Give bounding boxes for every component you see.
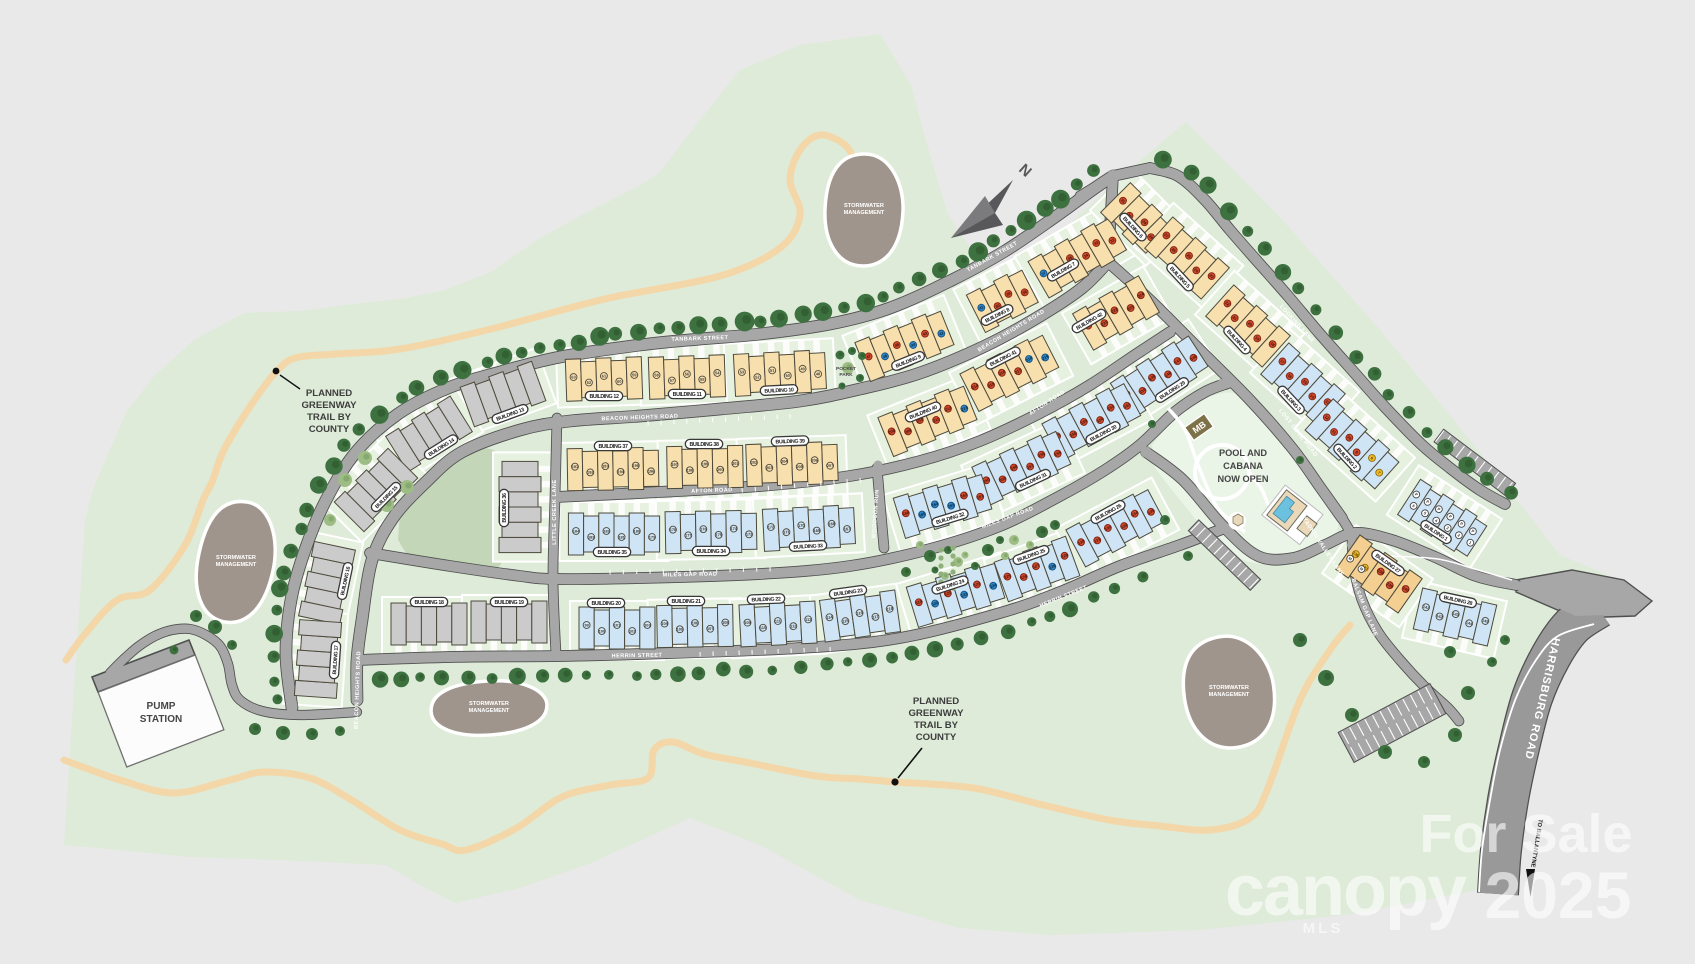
svg-text:PLANNED: PLANNED <box>306 388 352 399</box>
svg-text:178: 178 <box>670 527 677 532</box>
svg-text:110: 110 <box>760 625 767 630</box>
svg-text:MANAGEMENT: MANAGEMENT <box>1209 692 1250 698</box>
svg-text:103: 103 <box>644 622 651 627</box>
svg-text:206: 206 <box>811 457 818 462</box>
svg-text:117: 117 <box>872 614 879 620</box>
svg-text:195: 195 <box>632 463 639 468</box>
svg-text:LITTLE CREEK LANE: LITTLE CREEK LANE <box>552 479 558 544</box>
svg-text:PARK: PARK <box>839 372 853 378</box>
svg-text:205: 205 <box>796 464 803 469</box>
svg-text:172: 172 <box>768 524 776 529</box>
svg-text:108: 108 <box>722 620 729 625</box>
svg-text:200: 200 <box>717 467 724 472</box>
svg-text:182: 182 <box>603 528 610 533</box>
svg-text:175: 175 <box>715 532 722 537</box>
svg-text:POCKET: POCKET <box>836 366 856 372</box>
svg-text:102: 102 <box>629 628 636 633</box>
svg-text:POOL AND: POOL AND <box>1219 448 1267 458</box>
svg-text:113: 113 <box>805 617 812 622</box>
svg-text:BUILDING 19: BUILDING 19 <box>494 600 524 606</box>
svg-text:MLS: MLS <box>1303 920 1344 937</box>
svg-text:TRAIL BY: TRAIL BY <box>914 720 959 731</box>
svg-text:MANAGEMENT: MANAGEMENT <box>844 210 885 216</box>
svg-text:STATION: STATION <box>140 714 182 725</box>
svg-text:BUILDING 18: BUILDING 18 <box>414 600 444 606</box>
svg-text:177: 177 <box>685 533 692 538</box>
svg-text:176: 176 <box>700 526 707 531</box>
svg-text:STORMWATER: STORMWATER <box>1209 685 1249 691</box>
svg-text:TRAIL BY: TRAIL BY <box>307 412 352 423</box>
svg-text:BUILDING 37: BUILDING 37 <box>598 444 628 450</box>
svg-text:184: 184 <box>573 528 580 533</box>
svg-text:196: 196 <box>648 469 655 474</box>
svg-text:STORMWATER: STORMWATER <box>844 203 884 209</box>
svg-text:179: 179 <box>649 534 656 539</box>
svg-text:50: 50 <box>785 373 790 378</box>
svg-text:109: 109 <box>744 620 752 625</box>
svg-text:199: 199 <box>702 461 709 466</box>
svg-text:198: 198 <box>687 467 694 472</box>
svg-text:183: 183 <box>588 534 595 539</box>
svg-text:MILES GAP ROAD: MILES GAP ROAD <box>662 572 717 579</box>
svg-text:173: 173 <box>746 532 753 537</box>
svg-text:174: 174 <box>730 526 737 531</box>
svg-text:168: 168 <box>828 521 836 526</box>
svg-text:PLANNED: PLANNED <box>913 696 959 707</box>
svg-text:BUILDING 35: BUILDING 35 <box>597 550 627 556</box>
svg-text:BUILDING 34: BUILDING 34 <box>696 549 726 555</box>
svg-text:105: 105 <box>677 626 684 631</box>
svg-text:BUILDING 22: BUILDING 22 <box>751 596 781 603</box>
svg-text:170: 170 <box>798 523 805 528</box>
svg-text:192: 192 <box>587 470 594 475</box>
svg-text:169: 169 <box>813 528 821 533</box>
svg-text:111: 111 <box>775 618 782 623</box>
svg-text:100: 100 <box>599 628 606 633</box>
svg-text:STORMWATER: STORMWATER <box>216 555 256 561</box>
svg-text:BUILDING 39: BUILDING 39 <box>775 438 805 445</box>
svg-text:CABANA: CABANA <box>1223 461 1263 471</box>
svg-text:BUILDING 38: BUILDING 38 <box>689 442 719 448</box>
svg-text:MANAGEMENT: MANAGEMENT <box>469 708 510 714</box>
svg-text:canopy: canopy <box>1225 851 1467 931</box>
svg-text:112: 112 <box>790 623 797 628</box>
svg-text:203: 203 <box>766 465 773 470</box>
svg-text:BUILDING 11: BUILDING 11 <box>673 392 702 398</box>
svg-text:MANAGEMENT: MANAGEMENT <box>216 562 257 568</box>
svg-text:BUILDING 36: BUILDING 36 <box>502 493 508 523</box>
svg-text:BUILDING 21: BUILDING 21 <box>671 599 701 605</box>
svg-text:COUNTY: COUNTY <box>916 732 957 743</box>
svg-text:60: 60 <box>617 379 622 384</box>
svg-text:191: 191 <box>572 464 579 469</box>
svg-text:171: 171 <box>783 529 791 534</box>
svg-text:57: 57 <box>670 378 675 383</box>
svg-text:180: 180 <box>634 528 641 533</box>
svg-text:202: 202 <box>751 460 758 465</box>
svg-text:193: 193 <box>602 463 609 468</box>
svg-text:BUILDING 20: BUILDING 20 <box>591 601 621 607</box>
svg-text:207: 207 <box>827 463 834 468</box>
svg-text:197: 197 <box>671 462 678 467</box>
svg-text:2025: 2025 <box>1485 858 1632 932</box>
svg-text:194: 194 <box>617 469 624 474</box>
svg-text:GREENWAY: GREENWAY <box>908 708 964 719</box>
svg-text:BUILDING 12: BUILDING 12 <box>589 394 619 400</box>
svg-text:STORMWATER: STORMWATER <box>469 701 509 707</box>
svg-text:204: 204 <box>781 459 788 464</box>
svg-text:PUMP: PUMP <box>147 701 176 712</box>
svg-text:HERRIN STREET: HERRIN STREET <box>612 653 663 660</box>
svg-text:106: 106 <box>692 620 699 625</box>
svg-text:101: 101 <box>614 622 621 627</box>
svg-text:107: 107 <box>707 626 714 631</box>
svg-text:181: 181 <box>618 534 625 539</box>
svg-text:201: 201 <box>732 461 739 466</box>
svg-text:NOW OPEN: NOW OPEN <box>1217 474 1268 484</box>
svg-text:GREENWAY: GREENWAY <box>301 400 357 411</box>
svg-text:104: 104 <box>661 621 668 626</box>
svg-text:COUNTY: COUNTY <box>309 424 350 435</box>
svg-text:167: 167 <box>844 526 851 531</box>
